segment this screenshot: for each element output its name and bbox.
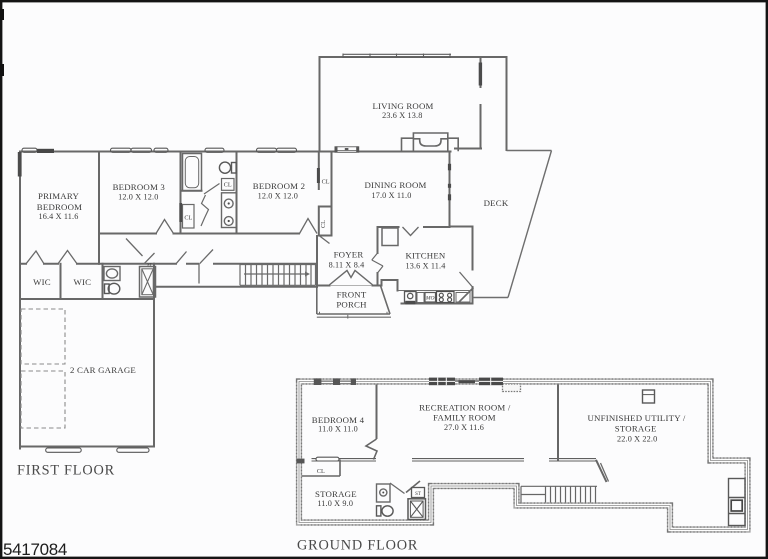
svg-text:GROUND FLOOR: GROUND FLOOR <box>297 538 418 554</box>
svg-text:11.0 X 9.0: 11.0 X 9.0 <box>317 499 353 508</box>
svg-text:ST: ST <box>147 262 152 267</box>
svg-text:DINING ROOM: DINING ROOM <box>364 180 426 190</box>
svg-text:KITCHEN: KITCHEN <box>405 251 445 261</box>
svg-text:CL: CL <box>184 214 192 221</box>
svg-text:BEDROOM 2: BEDROOM 2 <box>253 181 305 191</box>
svg-text:BEDROOM 4: BEDROOM 4 <box>312 415 365 425</box>
svg-text:MO: MO <box>425 296 435 302</box>
svg-text:RECREATION ROOM /: RECREATION ROOM / <box>419 402 511 412</box>
svg-text:LIVING ROOM: LIVING ROOM <box>372 101 433 111</box>
svg-text:BEDROOM 3: BEDROOM 3 <box>113 182 166 192</box>
svg-text:PRIMARY: PRIMARY <box>38 191 79 201</box>
svg-text:UNFINISHED UTILITY /: UNFINISHED UTILITY / <box>588 413 686 423</box>
svg-text:BEDROOM: BEDROOM <box>37 202 82 212</box>
svg-text:11.0 X 11.0: 11.0 X 11.0 <box>318 425 358 434</box>
svg-text:22.0 X 22.0: 22.0 X 22.0 <box>617 435 657 444</box>
svg-text:12.0 X 12.0: 12.0 X 12.0 <box>258 191 298 200</box>
svg-text:2 CAR GARAGE: 2 CAR GARAGE <box>70 365 136 375</box>
svg-text:27.0 X 11.6: 27.0 X 11.6 <box>444 423 484 432</box>
svg-text:23.6 X 13.8: 23.6 X 13.8 <box>382 111 422 120</box>
svg-text:STORAGE: STORAGE <box>315 489 357 499</box>
svg-text:13.6 X 11.4: 13.6 X 11.4 <box>405 262 445 271</box>
svg-text:FOYER: FOYER <box>334 249 364 259</box>
svg-text:CL: CL <box>322 178 330 185</box>
svg-text:STORAGE: STORAGE <box>615 424 657 434</box>
svg-text:16.4 X 11.6: 16.4 X 11.6 <box>38 212 78 221</box>
svg-text:WIC: WIC <box>33 277 51 287</box>
svg-text:DECK: DECK <box>484 198 509 208</box>
svg-text:12.0 X 12.0: 12.0 X 12.0 <box>118 192 158 201</box>
svg-text:CL: CL <box>317 468 325 475</box>
svg-text:PORCH: PORCH <box>336 299 367 309</box>
svg-text:17.0 X 11.0: 17.0 X 11.0 <box>371 191 411 200</box>
svg-text:CL: CL <box>224 182 232 189</box>
svg-text:FAMILY ROOM: FAMILY ROOM <box>433 412 496 422</box>
svg-text:FIRST FLOOR: FIRST FLOOR <box>17 463 115 479</box>
svg-text:8.11 X 8.4: 8.11 X 8.4 <box>329 261 365 270</box>
svg-text:FRONT: FRONT <box>337 289 367 299</box>
svg-text:WIC: WIC <box>73 277 91 287</box>
svg-text:ST: ST <box>415 492 421 497</box>
svg-text:CL: CL <box>320 220 327 228</box>
svg-text:5417084: 5417084 <box>3 540 67 559</box>
